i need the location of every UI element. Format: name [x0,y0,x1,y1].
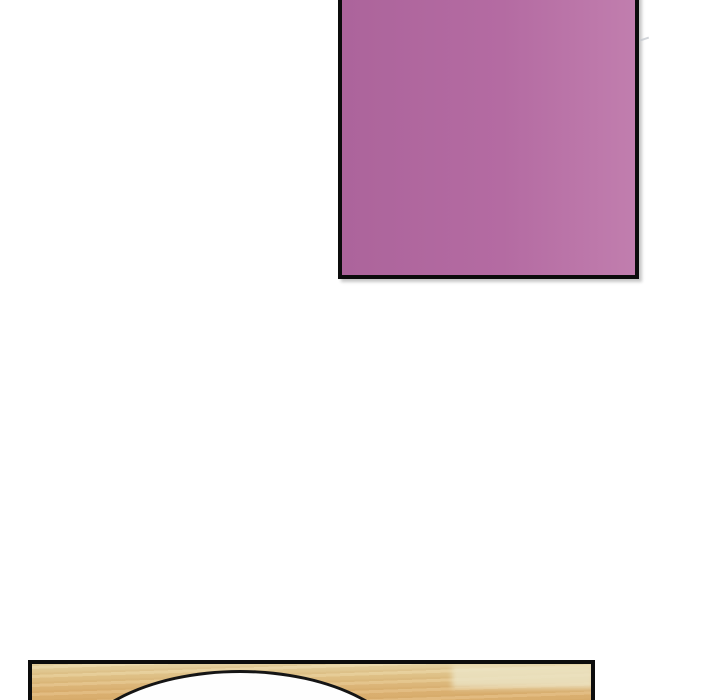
wood-highlight-patch [452,665,594,688]
comic-panel-purple [338,0,639,279]
stray-pen-mark [640,37,649,42]
comic-panel-wood-table [28,660,595,700]
comic-page [0,0,720,700]
